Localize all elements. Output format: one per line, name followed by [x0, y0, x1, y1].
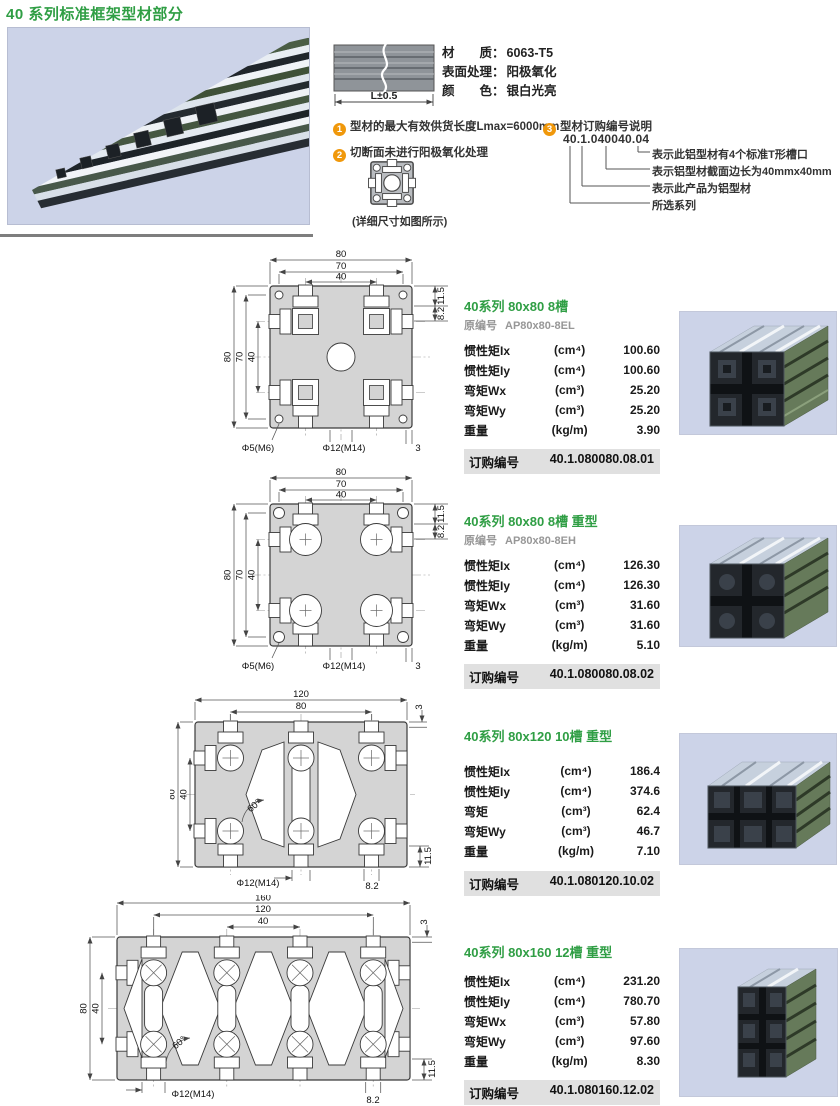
spec-row: 惯性矩Iy(cm⁴)374.6 — [464, 781, 660, 801]
product-orig-code: 原编号AP80x80-8EH — [464, 532, 660, 548]
dim-label: 3 — [415, 443, 420, 454]
dim-label: Φ12(M14) — [323, 443, 366, 454]
mini-profile-icon — [365, 156, 419, 210]
order-number-row: 订购编号 40.1.080080.08.02 — [464, 664, 660, 689]
dim-label: 11.5 — [436, 287, 447, 305]
dim-label: 80 — [223, 352, 234, 363]
dim-label: 80 — [80, 1003, 90, 1014]
dim-label: Φ12(M14) — [237, 878, 280, 889]
product-title: 40系列 80x80 8槽 重型 — [464, 511, 660, 530]
note-1-number-icon: 1 — [333, 123, 346, 136]
dim-label: 80 — [336, 249, 347, 260]
order-code: 40.1.080160.12.02 — [550, 1083, 654, 1102]
spec-row: 重量(kg/m)5.10 — [464, 635, 660, 655]
dim-label: 80 — [296, 701, 307, 712]
material-info: 材 质：6063-T5 表面处理：阳极氧化 颜 色：银白光亮 — [442, 44, 557, 101]
dim-label: 40 — [258, 916, 269, 927]
spec-row: 惯性矩Ix(cm⁴)231.20 — [464, 971, 660, 991]
dim-label: 40 — [336, 272, 347, 283]
dim-label: 3 — [419, 919, 430, 924]
cross-section-drawing-80x160-heavy: 160 120 40 3 80 40 60° Φ12(M14) 8.2 11.5 — [80, 895, 460, 1106]
cross-section-drawing-80x80-heavy: 80 70 40 80 70 40 11.5 8.2 Φ5(M6) Φ12(M1… — [222, 466, 457, 681]
dim-label: 3 — [414, 704, 425, 709]
spec-table: 惯性矩Ix(cm⁴)126.30 惯性矩Iy(cm⁴)126.30 弯矩Wx(c… — [464, 555, 660, 655]
dim-label: 80 — [223, 570, 234, 581]
dim-label: 70 — [235, 352, 246, 363]
dim-label: Φ5(M6) — [242, 443, 274, 454]
order-code: 40.1.080080.08.02 — [550, 667, 654, 686]
spec-row: 弯矩Wy(cm³)46.7 — [464, 821, 660, 841]
dim-label: 120 — [255, 904, 271, 915]
dim-label: 80 — [170, 789, 178, 800]
product-title: 40系列 80x120 10槽 重型 — [464, 726, 660, 745]
spec-row: 惯性矩Ix(cm⁴)186.4 — [464, 761, 660, 781]
dim-label: 40 — [91, 1003, 102, 1014]
order-label: 订购编号 — [469, 667, 519, 686]
length-tolerance-diagram: L±0.5 — [333, 44, 437, 108]
product-photo-80x80-standard — [679, 311, 837, 435]
dim-label: 120 — [293, 690, 309, 700]
product-title: 40系列 80x160 12槽 重型 — [464, 942, 660, 961]
material-row: 颜 色：银白光亮 — [442, 82, 557, 101]
spec-row: 重量(kg/m)8.30 — [464, 1051, 660, 1071]
dim-label: 11.5 — [427, 1060, 438, 1078]
order-label: 订购编号 — [469, 452, 519, 471]
code-legend-item: 表示此铝型材有4个标准T形槽口 — [652, 146, 808, 162]
dim-label: 40 — [247, 570, 258, 581]
code-legend-item: 表示铝型材截面边长为40mmx40mm — [652, 163, 832, 179]
dim-label: Φ5(M6) — [242, 661, 274, 672]
dim-label: 3 — [415, 661, 420, 672]
dim-label: 160 — [255, 895, 271, 904]
order-code: 40.1.080080.08.01 — [550, 452, 654, 471]
spec-row: 弯矩(cm³)62.4 — [464, 801, 660, 821]
dim-label: Φ12(M14) — [323, 661, 366, 672]
dim-label: 40 — [179, 789, 190, 800]
product-info-2: 40系列 80x80 8槽 重型 原编号AP80x80-8EH 惯性矩Ix(cm… — [464, 511, 660, 689]
spec-table: 惯性矩Ix(cm⁴)231.20 惯性矩Iy(cm⁴)780.70 弯矩Wx(c… — [464, 971, 660, 1071]
note-3-number-icon: 3 — [543, 123, 556, 136]
order-number-row: 订购编号 40.1.080080.08.01 — [464, 449, 660, 474]
order-number-row: 订购编号 40.1.080160.12.02 — [464, 1080, 660, 1105]
spec-row: 弯矩Wx(cm³)31.60 — [464, 595, 660, 615]
hero-image — [7, 27, 310, 225]
material-row: 材 质：6063-T5 — [442, 44, 557, 63]
detail-caption: (详细尺寸如图所示) — [352, 213, 447, 229]
dim-label: 11.5 — [436, 505, 447, 523]
spec-row: 弯矩Wx(cm³)25.20 — [464, 380, 660, 400]
product-photo-80x120-heavy — [679, 733, 837, 865]
code-legend-item: 表示此产品为铝型材 — [652, 180, 751, 196]
note-1: 1型材的最大有效供货长度Lmax=6000mm — [333, 118, 559, 136]
dim-label: 80 — [336, 467, 347, 478]
dim-label: 70 — [235, 570, 246, 581]
dim-label: 11.5 — [423, 847, 434, 865]
spec-row: 惯性矩Ix(cm⁴)100.60 — [464, 340, 660, 360]
spec-row: 弯矩Wy(cm³)31.60 — [464, 615, 660, 635]
dim-label: 8.2 — [366, 1095, 379, 1106]
material-row: 表面处理：阳极氧化 — [442, 63, 557, 82]
order-label: 订购编号 — [469, 874, 519, 893]
dim-label: 8.2 — [436, 525, 447, 538]
section-divider — [0, 234, 313, 237]
dim-label: 8.2 — [436, 307, 447, 320]
profile-stack-illustration — [8, 28, 309, 224]
order-label: 订购编号 — [469, 1083, 519, 1102]
code-legend-item: 所选系列 — [652, 197, 696, 213]
product-info-1: 40系列 80x80 8槽 原编号AP80x80-8EL 惯性矩Ix(cm⁴)1… — [464, 296, 660, 474]
spec-table: 惯性矩Ix(cm⁴)186.4 惯性矩Iy(cm⁴)374.6 弯矩(cm³)6… — [464, 761, 660, 861]
catalog-page: 40 系列标准框架型材部分 — [0, 0, 840, 1106]
dim-label: 40 — [336, 490, 347, 501]
spec-row: 弯矩Wy(cm³)97.60 — [464, 1031, 660, 1051]
dim-label: 40 — [247, 352, 258, 363]
product-info-4: 40系列 80x160 12槽 重型 惯性矩Ix(cm⁴)231.20 惯性矩I… — [464, 942, 660, 1105]
product-title: 40系列 80x80 8槽 — [464, 296, 660, 315]
order-number-row: 订购编号 40.1.080120.10.02 — [464, 871, 660, 896]
page-title: 40 系列标准框架型材部分 — [6, 3, 183, 24]
product-photo-80x160-heavy — [679, 948, 838, 1097]
order-code: 40.1.080120.10.02 — [550, 874, 654, 893]
spec-row: 弯矩Wy(cm³)25.20 — [464, 400, 660, 420]
note-2-number-icon: 2 — [333, 149, 346, 162]
spec-row: 弯矩Wx(cm³)57.80 — [464, 1011, 660, 1031]
spec-row: 惯性矩Iy(cm⁴)100.60 — [464, 360, 660, 380]
cross-section-drawing-80x80-standard: 80 70 40 80 70 40 11.5 8.2 Φ5(M6) Φ12(M1… — [222, 248, 457, 463]
spec-row: 惯性矩Iy(cm⁴)126.30 — [464, 575, 660, 595]
dim-label: 70 — [336, 261, 347, 272]
spec-row: 惯性矩Iy(cm⁴)780.70 — [464, 991, 660, 1011]
product-info-3: 40系列 80x120 10槽 重型 惯性矩Ix(cm⁴)186.4 惯性矩Iy… — [464, 726, 660, 896]
cross-section-drawing-80x120-heavy: 120 80 3 80 40 60° Φ12(M14) 8.2 11.5 — [170, 690, 455, 890]
spec-table: 惯性矩Ix(cm⁴)100.60 惯性矩Iy(cm⁴)100.60 弯矩Wx(c… — [464, 340, 660, 440]
product-photo-80x80-heavy — [679, 525, 837, 647]
spec-row: 惯性矩Ix(cm⁴)126.30 — [464, 555, 660, 575]
spec-row: 重量(kg/m)7.10 — [464, 841, 660, 861]
dim-label: 8.2 — [365, 881, 378, 890]
dim-label: 70 — [336, 479, 347, 490]
length-label: L±0.5 — [371, 90, 398, 102]
spec-row: 重量(kg/m)3.90 — [464, 420, 660, 440]
dim-label: Φ12(M14) — [172, 1089, 215, 1100]
product-orig-code: 原编号AP80x80-8EL — [464, 317, 660, 333]
